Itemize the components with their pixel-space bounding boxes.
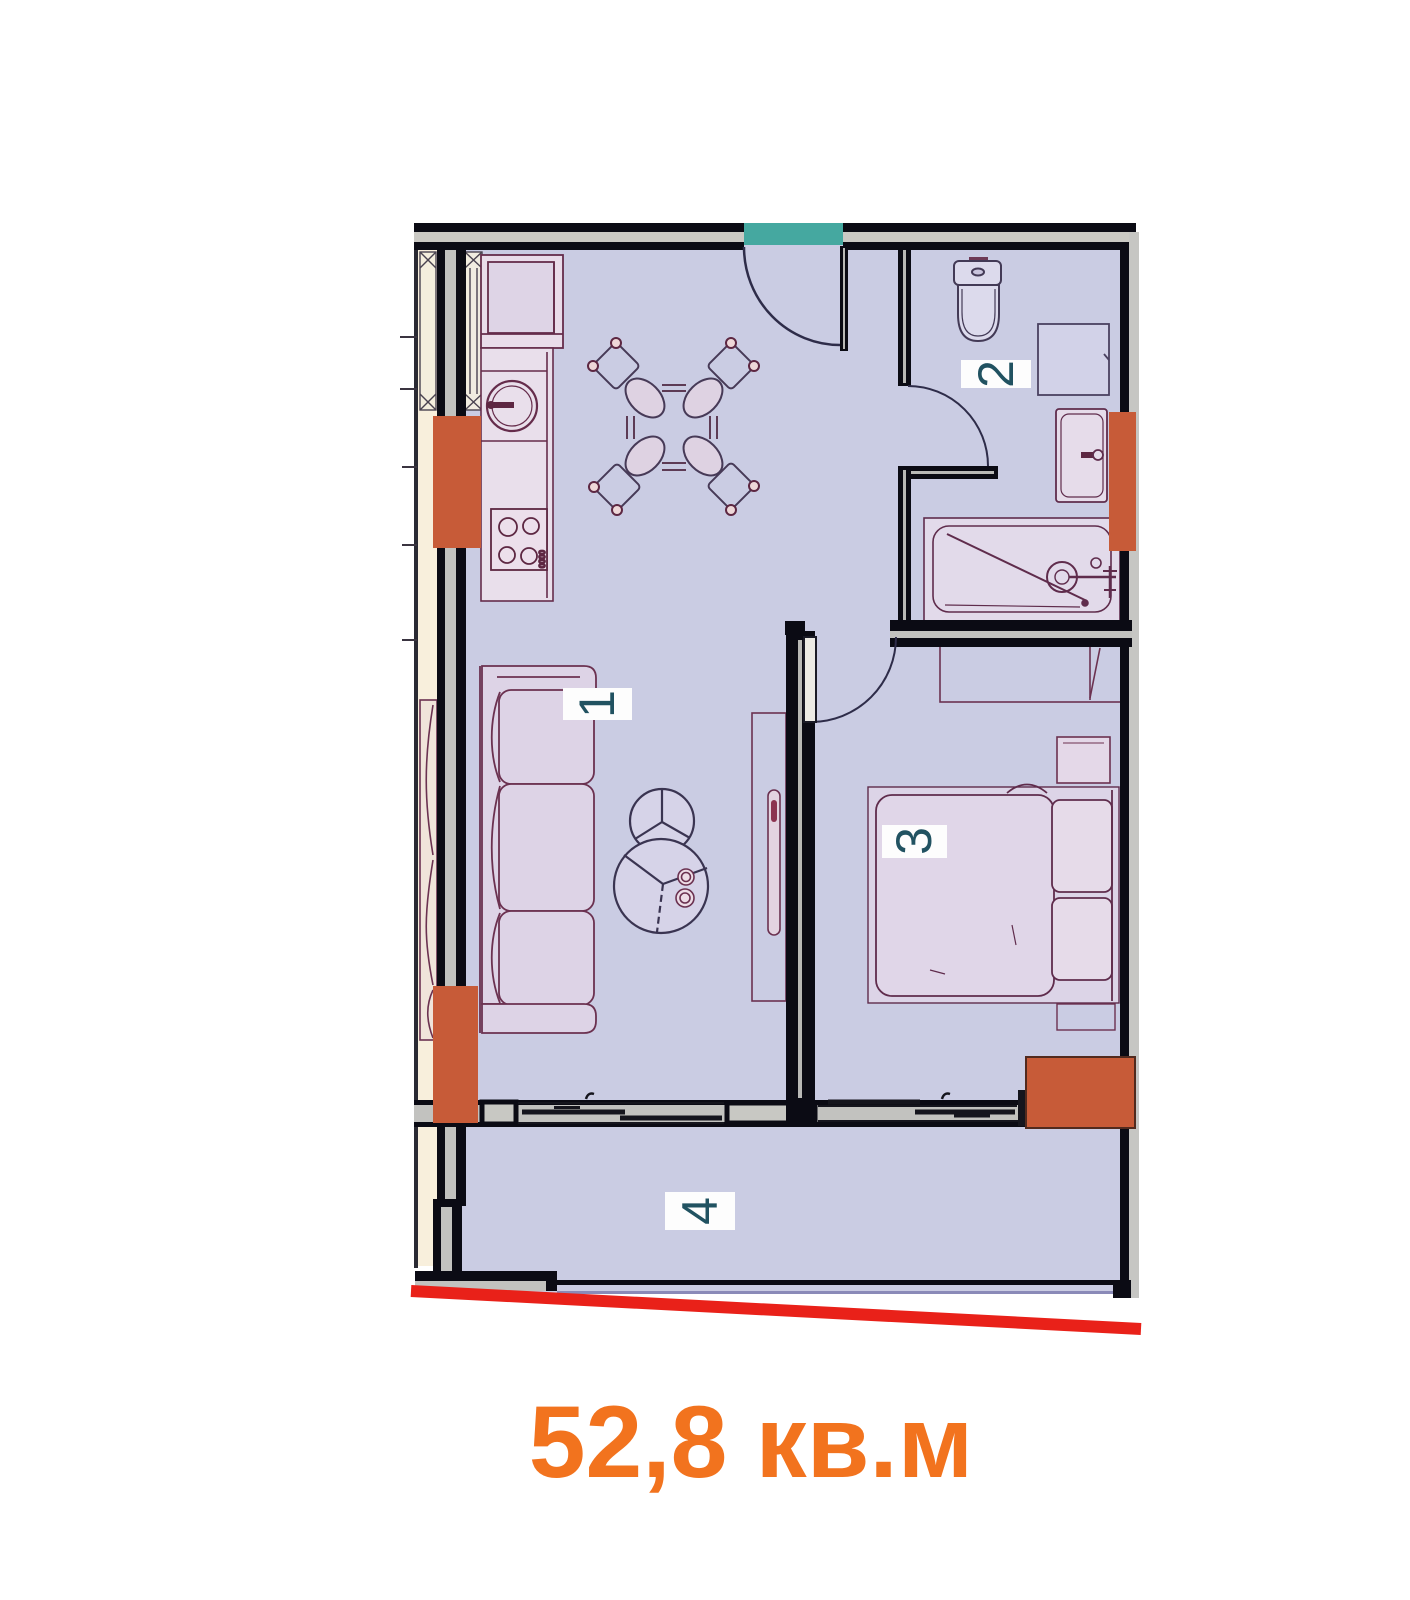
svg-text:3: 3 [886,827,942,855]
svg-text:2: 2 [968,360,1024,388]
svg-text:52,8 кв.м: 52,8 кв.м [529,1385,973,1499]
svg-text:1: 1 [569,690,625,718]
svg-text:0000: 0000 [538,550,547,568]
svg-text:4: 4 [672,1197,728,1225]
